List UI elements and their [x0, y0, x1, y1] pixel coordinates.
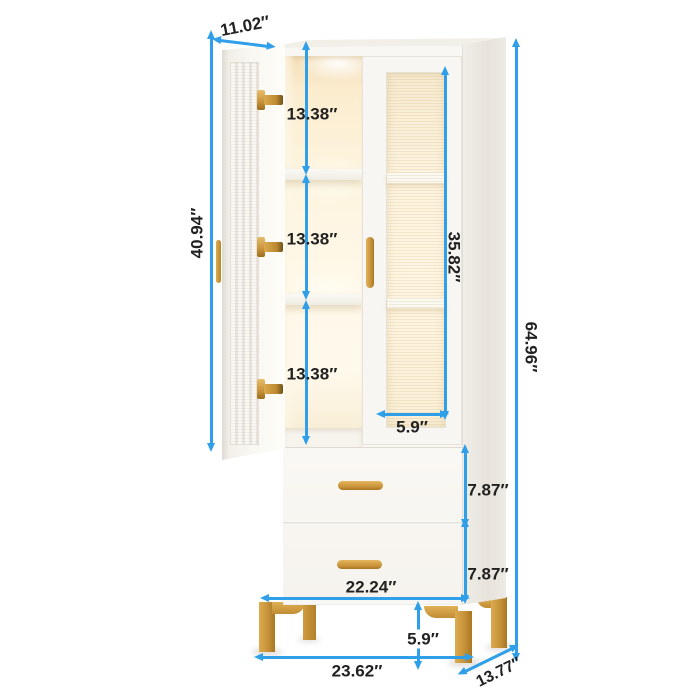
dim-left-door-height-label: 40.94″ [189, 208, 206, 259]
dim-drawer-width-line [268, 597, 462, 600]
dim-drawer-1-height-label: 7.87″ [467, 482, 508, 499]
dim-total-height-label: 64.96″ [523, 322, 540, 373]
right-door-handle [366, 237, 374, 288]
fluted-glass-texture [387, 73, 445, 427]
dim-compartment-2-label: 13.38″ [287, 231, 338, 248]
right-door-glass [386, 72, 446, 428]
front-right-leg-arm [424, 606, 458, 618]
hinge-top [257, 90, 284, 110]
shelf-1 [283, 169, 362, 180]
dim-drawer-2-height-label: 7.87″ [467, 566, 508, 583]
dim-left-door-height-line [210, 38, 213, 444]
hinge-middle [257, 237, 284, 257]
back-right-leg [491, 597, 507, 648]
dim-total-height-line [515, 46, 518, 654]
dim-drawer-1-height-line [464, 452, 467, 520]
dim-total-width-line [262, 656, 466, 659]
door-edge [222, 44, 229, 460]
shelf-2 [283, 294, 362, 305]
dim-compartment-3-label: 13.38″ [287, 366, 338, 383]
dim-compartment-1-label: 13.38″ [287, 106, 338, 123]
drawer-1-handle [338, 481, 383, 490]
dim-glass-width-label: 5.9″ [396, 419, 428, 436]
dim-total-width-label: 23.62″ [332, 663, 383, 680]
dim-right-glass-height-label: 35.82″ [446, 232, 463, 283]
hinge-bottom [257, 379, 284, 399]
dim-door-width-line [220, 39, 268, 47]
dim-drawer-width-label: 22.24″ [346, 579, 397, 596]
fluted-door-panel [230, 62, 259, 445]
drawer-2-handle [337, 560, 382, 569]
dim-glass-width-line [384, 413, 441, 416]
product-dimension-diagram: 11.02″ 40.94″ 13.38″ 13.38″ 13.38″ 35.82… [0, 0, 700, 700]
interior-bottom-rail [283, 428, 362, 447]
back-left-leg [303, 604, 316, 640]
left-door-handle [216, 240, 221, 283]
dim-door-width-label: 11.02″ [219, 13, 271, 39]
dim-leg-height-label: 5.9″ [405, 630, 441, 649]
drawer-divider [283, 522, 463, 525]
dim-drawer-2-height-line [464, 526, 467, 596]
